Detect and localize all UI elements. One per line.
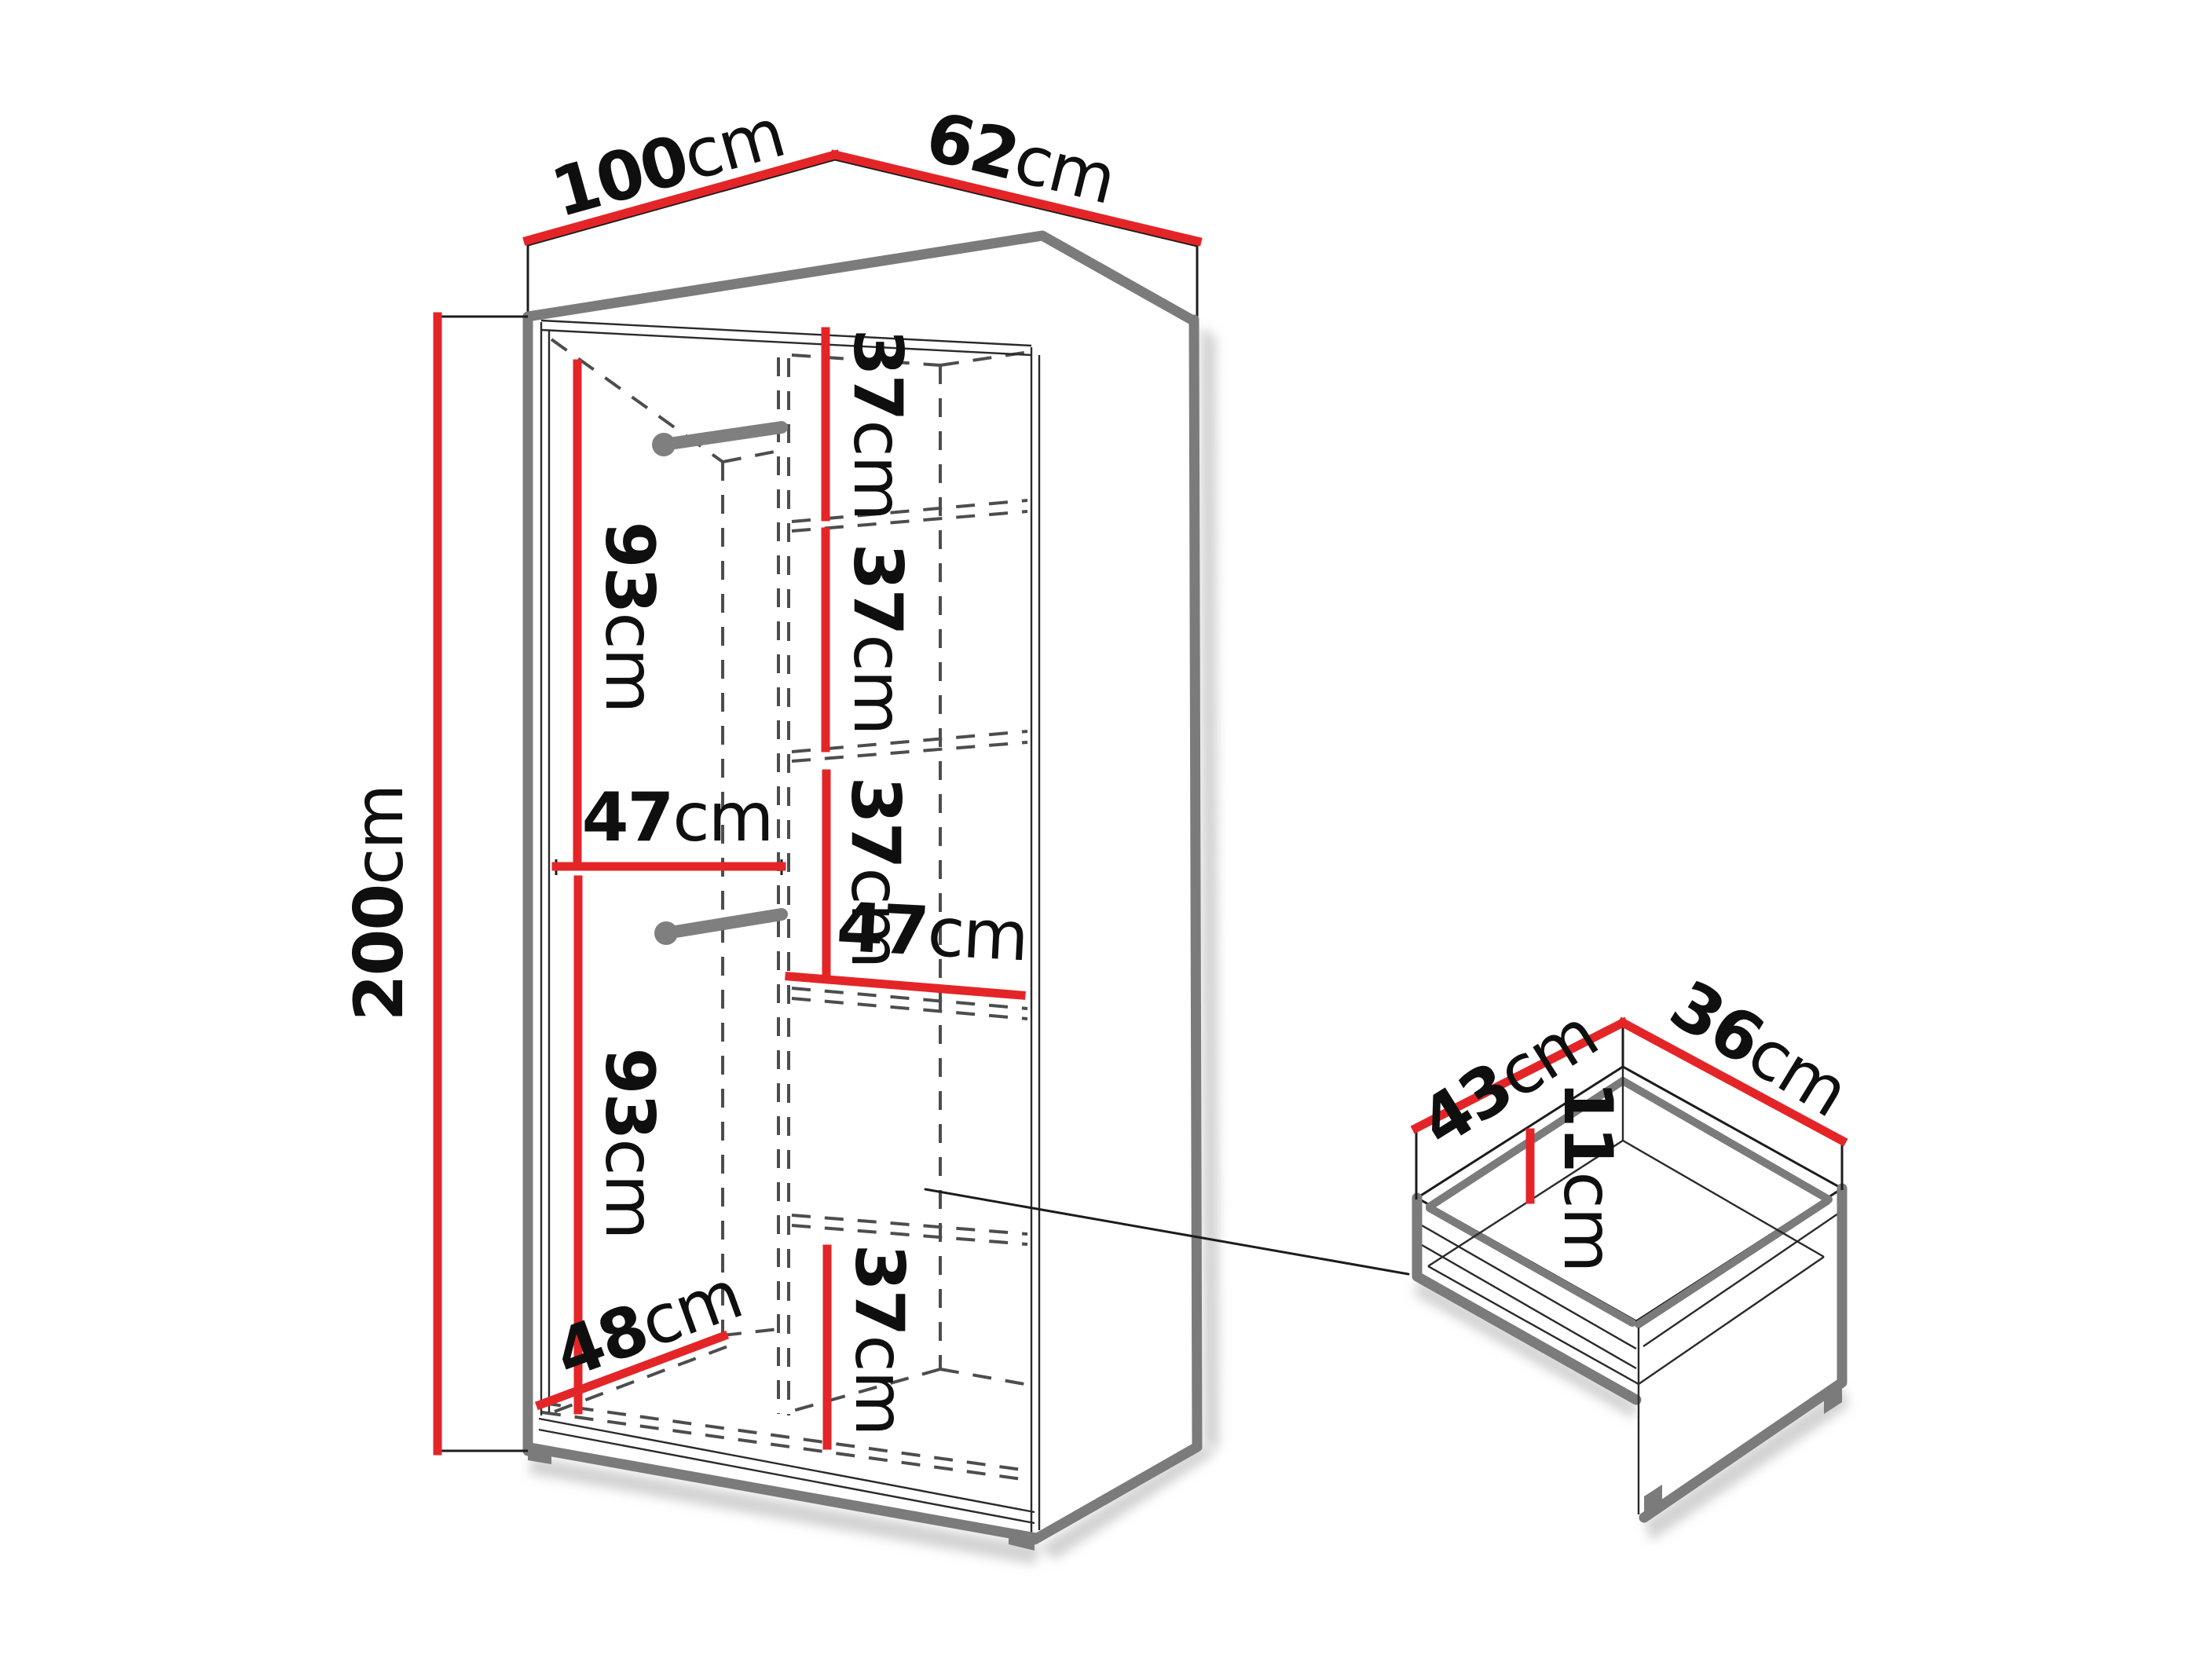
label-hang-upper: 93cm xyxy=(590,522,668,712)
label-drawer-height: 11cm xyxy=(1548,1081,1627,1272)
label-left-width: 47cm xyxy=(582,778,773,857)
label-hang-lower: 93cm xyxy=(590,1048,668,1239)
wardrobe-dimension-diagram: 100cm 62cm 200cm 93cm 47cm 93cm 48cm 37c… xyxy=(0,0,2212,1659)
label-shelf-bottom: 37cm xyxy=(840,1244,918,1435)
label-shelf1: 37cm xyxy=(838,329,917,520)
label-height: 200cm xyxy=(340,786,419,1022)
label-shelf2: 37cm xyxy=(838,544,917,734)
label-shelf-width: 47cm xyxy=(835,888,1030,977)
side-face xyxy=(1035,236,1197,1540)
